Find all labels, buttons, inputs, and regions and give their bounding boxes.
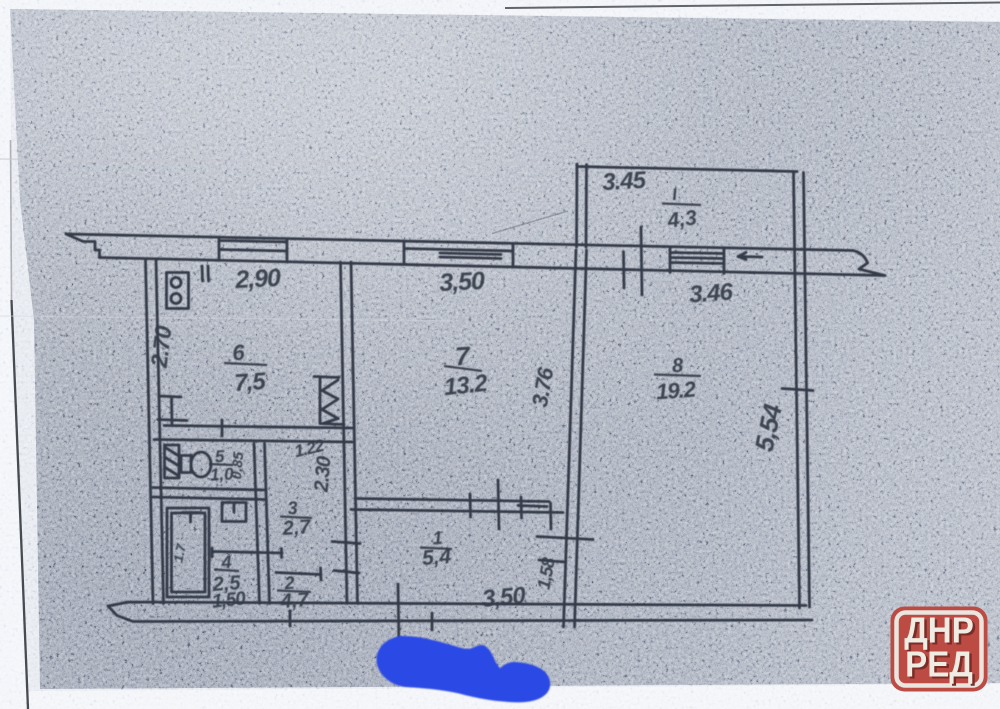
svg-text:2,7: 2,7 [281,516,312,540]
svg-text:3.46: 3.46 [688,278,734,308]
svg-text:2.30: 2.30 [310,455,335,494]
svg-text:4,3: 4,3 [665,206,698,233]
svg-text:19.2: 19.2 [655,377,697,405]
svg-text:3,50: 3,50 [481,582,528,613]
svg-text:3,50: 3,50 [439,267,486,297]
svg-text:3.45: 3.45 [602,167,648,196]
svg-text:1,50: 1,50 [211,588,247,612]
svg-text:2.70: 2.70 [146,324,177,370]
svg-text:РЕД: РЕД [905,645,973,685]
svg-text:2,90: 2,90 [234,264,282,294]
svg-text:3: 3 [287,498,298,519]
svg-text:13.2: 13.2 [443,370,490,401]
svg-text:7,5: 7,5 [233,368,267,397]
